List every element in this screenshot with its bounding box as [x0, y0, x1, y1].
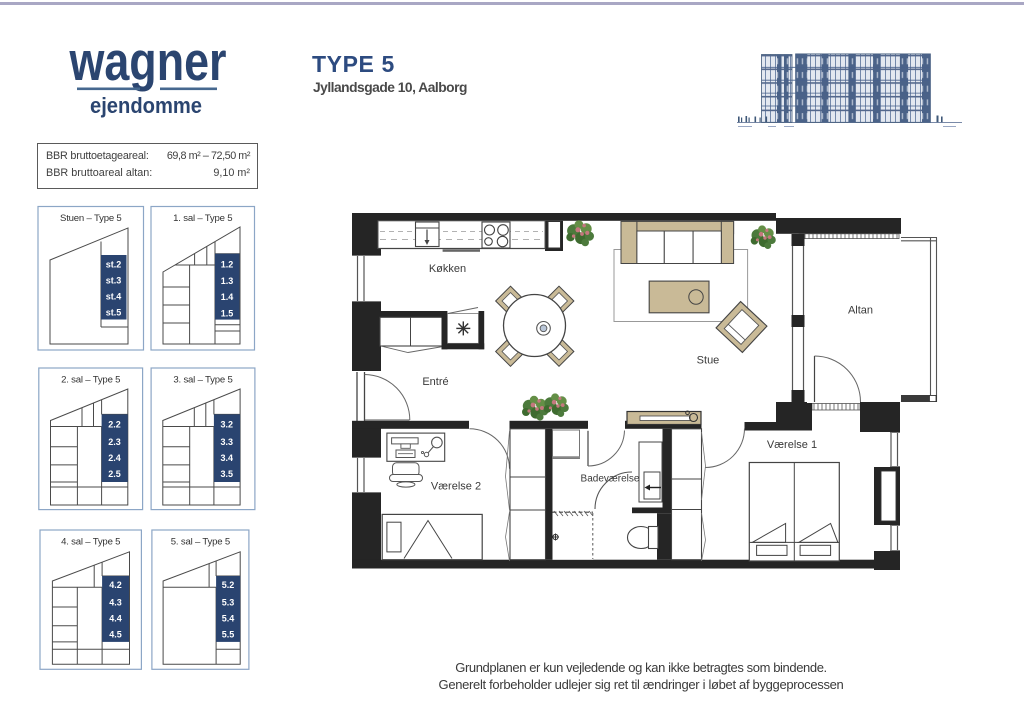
svg-text:2. sal – Type 5: 2. sal – Type 5 — [61, 375, 120, 386]
svg-text:4.4: 4.4 — [109, 614, 122, 624]
svg-text:Værelse 2: Værelse 2 — [431, 481, 481, 493]
svg-text:2.5: 2.5 — [108, 469, 121, 479]
svg-text:4.2: 4.2 — [109, 580, 122, 590]
svg-text:2.3: 2.3 — [108, 437, 121, 447]
svg-text:1. sal – Type 5: 1. sal – Type 5 — [173, 213, 232, 224]
svg-text:st.5: st.5 — [106, 308, 122, 318]
svg-text:1.2: 1.2 — [221, 260, 234, 270]
svg-text:st.4: st.4 — [106, 292, 122, 302]
svg-text:5.4: 5.4 — [222, 614, 235, 624]
svg-text:Altan: Altan — [848, 305, 873, 317]
svg-text:Badeværelse: Badeværelse — [581, 474, 640, 485]
svg-text:3. sal – Type 5: 3. sal – Type 5 — [173, 375, 232, 386]
svg-text:3.4: 3.4 — [221, 453, 234, 463]
svg-text:5.5: 5.5 — [222, 630, 235, 640]
svg-text:Stue: Stue — [697, 355, 720, 367]
svg-text:Værelse 1: Værelse 1 — [767, 439, 817, 451]
svg-text:Køkken: Køkken — [429, 263, 466, 275]
svg-text:1.4: 1.4 — [221, 292, 234, 302]
svg-text:1.3: 1.3 — [221, 276, 234, 286]
svg-text:5.2: 5.2 — [222, 580, 235, 590]
svg-text:st.2: st.2 — [106, 260, 122, 270]
svg-text:4.5: 4.5 — [109, 630, 122, 640]
svg-text:2.2: 2.2 — [108, 420, 121, 430]
svg-text:Stuen – Type 5: Stuen – Type 5 — [60, 213, 122, 224]
svg-text:5.3: 5.3 — [222, 597, 235, 607]
svg-text:5. sal – Type 5: 5. sal – Type 5 — [171, 537, 230, 548]
svg-text:4.3: 4.3 — [109, 597, 122, 607]
svg-text:3.3: 3.3 — [221, 437, 234, 447]
svg-text:Entré: Entré — [422, 376, 448, 388]
svg-text:2.4: 2.4 — [108, 453, 121, 463]
svg-text:1.5: 1.5 — [221, 309, 234, 319]
svg-text:3.5: 3.5 — [221, 469, 234, 479]
svg-text:3.2: 3.2 — [221, 420, 234, 430]
svg-text:st.3: st.3 — [106, 276, 122, 286]
svg-text:4. sal – Type 5: 4. sal – Type 5 — [61, 537, 120, 548]
